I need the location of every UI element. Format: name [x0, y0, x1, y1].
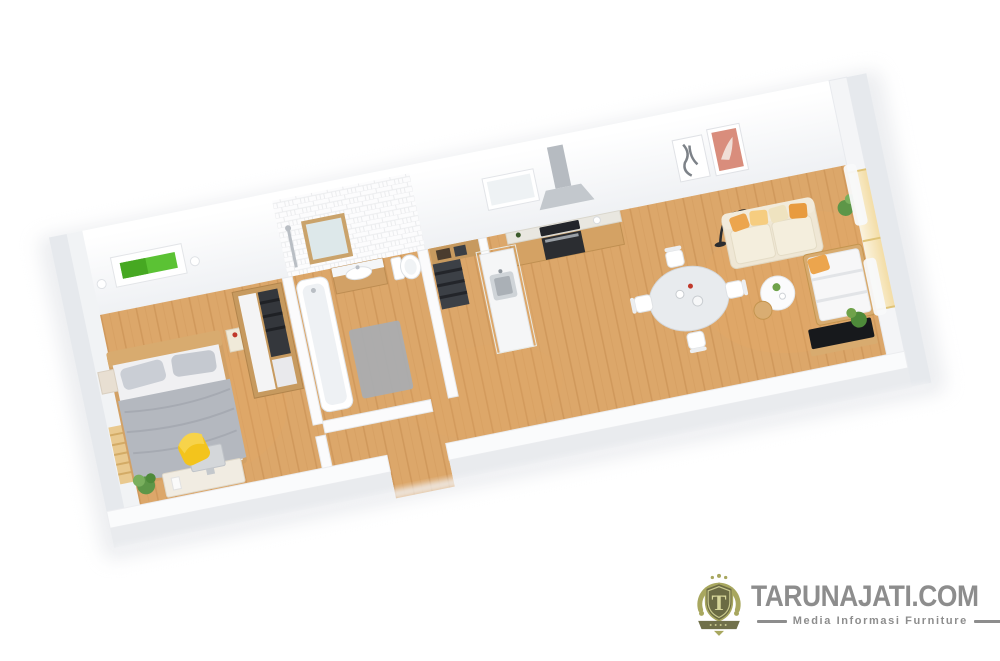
watermark-title: TARUNAJATI.COM: [751, 582, 979, 612]
watermark: T TARUNAJATI.COM Media Informasi Furnitu…: [694, 572, 1000, 638]
watermark-text: TARUNAJATI.COM Media Informasi Furniture: [751, 572, 1000, 627]
desk-papers: [171, 477, 181, 490]
tarunajati-emblem-icon: T: [694, 572, 744, 638]
watermark-subtitle-row: Media Informasi Furniture: [757, 615, 1000, 627]
pillow-orange-2: [789, 203, 808, 219]
screenshot-canvas: T TARUNAJATI.COM Media Informasi Furnitu…: [0, 0, 1000, 661]
framed-mirror: [301, 213, 353, 265]
subtitle-dash-right: [974, 620, 1000, 623]
chair-east: [725, 280, 745, 299]
pillow-yellow: [749, 209, 768, 226]
watermark-subtitle: Media Informasi Furniture: [793, 615, 968, 627]
chair-west: [634, 294, 654, 313]
floor-plan-render: [0, 0, 1000, 661]
chair-north: [665, 249, 685, 268]
subtitle-dash-left: [757, 620, 787, 623]
mirror-glass: [306, 218, 349, 260]
chair-south: [686, 331, 706, 350]
emblem-letter: T: [711, 590, 726, 615]
